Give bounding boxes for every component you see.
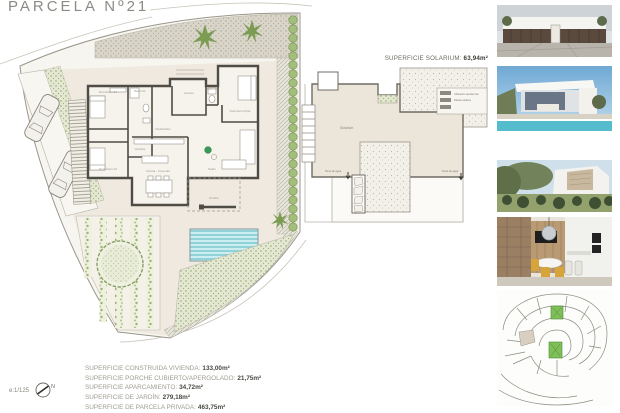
room-label: Dormitorio 01 <box>99 90 117 94</box>
legend-text: Placas solares <box>454 98 472 102</box>
surface-line: SUPERFICIE CONSTRUIDA VIVIENDA:133,00m² <box>85 364 261 374</box>
solarium-area-value: 63,94m² <box>464 55 488 62</box>
room-label: Distribuidor <box>155 127 170 131</box>
room-label: Baño 02 <box>206 87 218 91</box>
photo-site-plan-map <box>497 290 612 406</box>
stone-path-icon <box>352 175 365 213</box>
room-label: Cocina - Comedor <box>146 169 170 173</box>
room-label: Acceso <box>184 91 194 95</box>
svg-text:Toma de agua: Toma de agua <box>442 169 459 173</box>
solarium-area-heading: SUPERFICIE SOLARIUM: 63,94m² <box>330 55 488 62</box>
surface-line: SUPERFICIE APARCAMIENTO:34,72m² <box>85 383 261 393</box>
surface-line: SUPERFICIE PORCHE CUBIERTO/APERGOLADO:21… <box>85 374 261 384</box>
scale-label: e:1/125 <box>9 388 29 394</box>
surface-line: SUPERFICIE DE PARCELA PRIVADA:463,75m² <box>85 403 261 413</box>
north-label: N <box>51 384 55 390</box>
room-label: Dormitorio 02 <box>99 167 117 171</box>
svg-text:Toma de agua: Toma de agua <box>325 169 342 173</box>
surface-line: SUPERFICIE DE JARDÍN:279,18m² <box>85 393 261 403</box>
legend-text: Ubicación aerotermia <box>454 92 479 96</box>
solarium-plan: Ubicación aerotermia Placas solares Sola… <box>302 68 487 222</box>
side-path-hatch <box>277 58 290 234</box>
photo-render-front-elevation <box>497 5 612 57</box>
north-compass-icon: N <box>34 380 60 400</box>
stairs-icon <box>302 105 315 162</box>
solar-legend: Ubicación aerotermia Placas solares <box>437 88 487 114</box>
tree-icon <box>97 241 143 287</box>
plant-pot-icon <box>205 147 212 154</box>
room-label: Vestidor <box>135 147 146 151</box>
room-label: Porche <box>209 196 219 200</box>
room-label: Solarium <box>340 126 354 130</box>
room-label: Dormitorio Ppal <box>230 109 251 113</box>
room-label: Baño 01 <box>134 89 146 93</box>
photo-render-interior-kitchen <box>497 217 612 286</box>
photo-render-pool-view <box>497 66 612 131</box>
room-label: Salón <box>208 167 216 171</box>
photo-render-garden-view <box>497 160 612 212</box>
solarium-area-label: SUPERFICIE SOLARIUM: <box>385 55 462 62</box>
surface-areas-list: SUPERFICIE CONSTRUIDA VIVIENDA:133,00m² … <box>85 364 261 413</box>
